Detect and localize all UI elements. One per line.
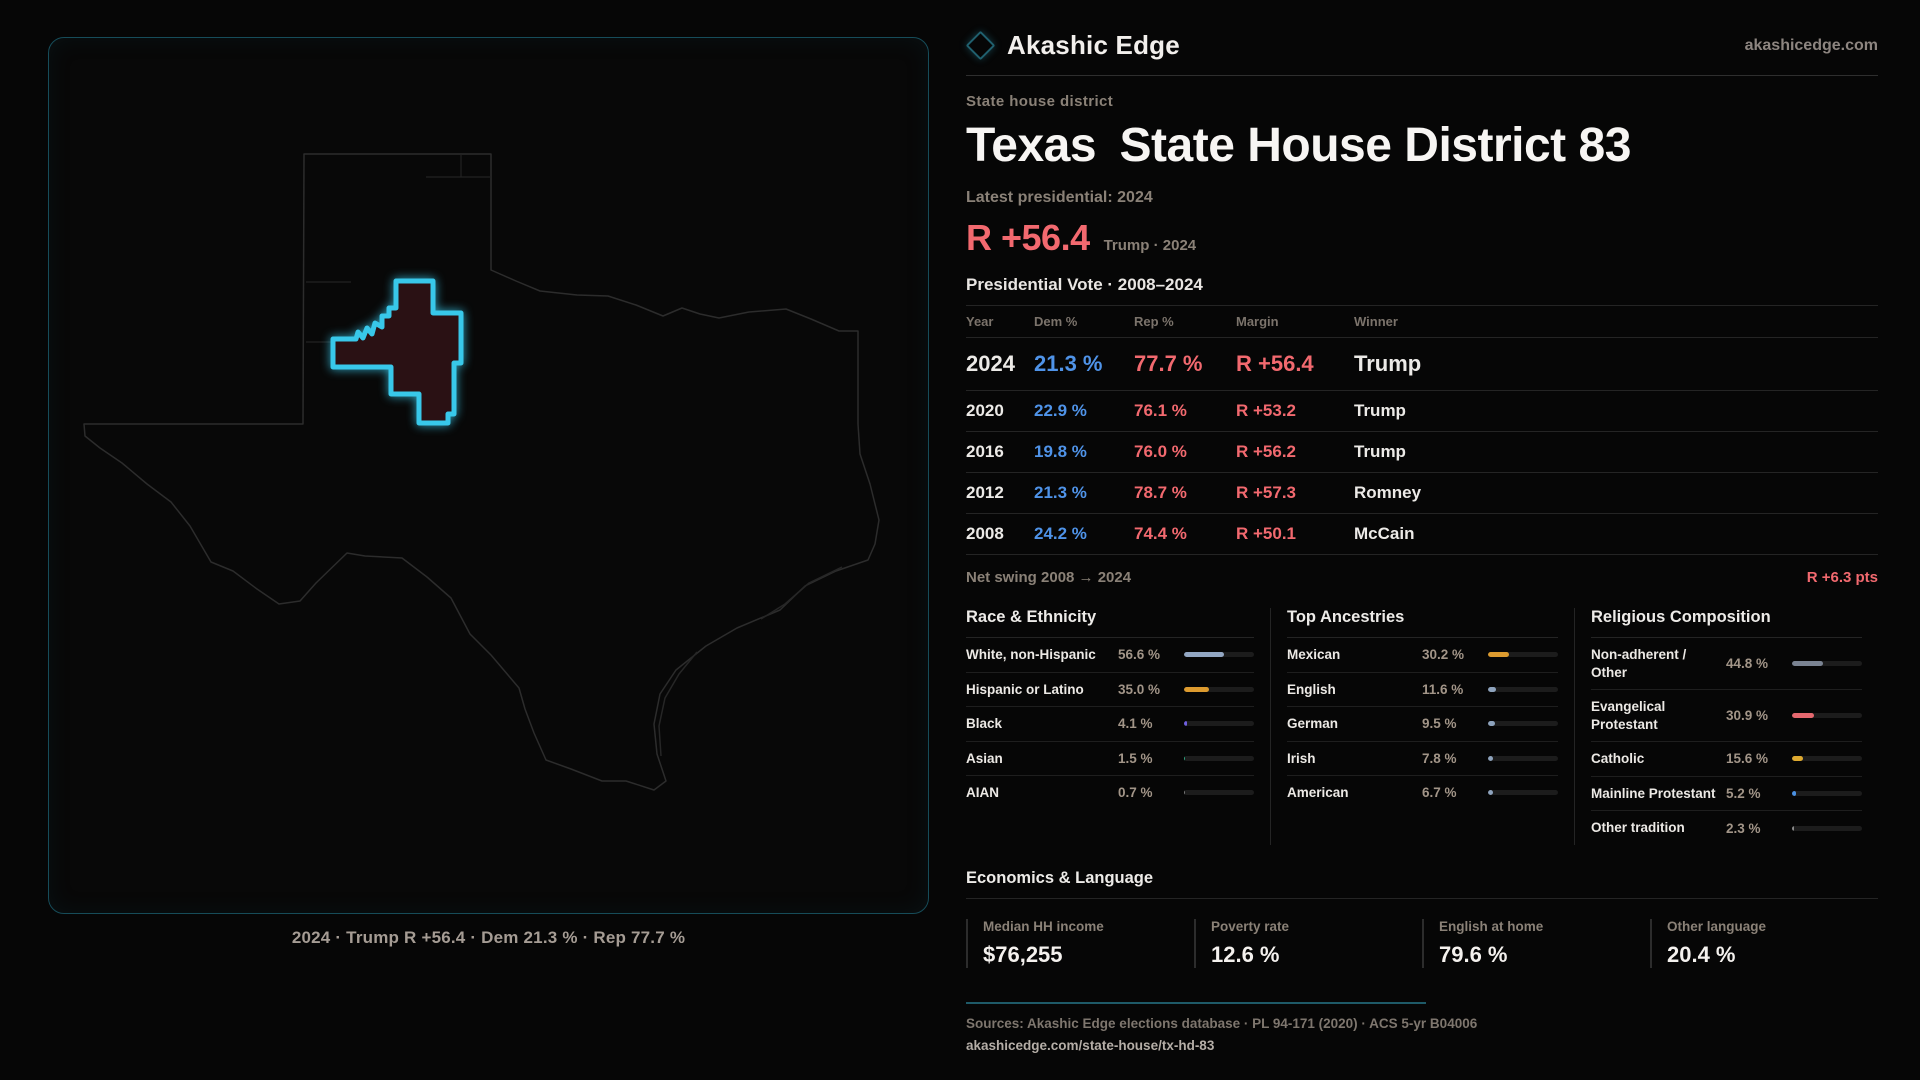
stat-row: Mexican 30.2 % (1287, 638, 1558, 673)
stat-bar (1488, 721, 1558, 726)
texas-outline (84, 154, 879, 790)
headline-context: Trump · 2024 (1104, 237, 1197, 254)
texas-map (49, 38, 929, 914)
diamond-logo-icon (966, 31, 996, 61)
stat-row: Catholic 15.6 % (1591, 742, 1862, 777)
map-caption: 2024 · Trump R +56.4 · Dem 21.3 % · Rep … (48, 928, 929, 948)
stat-row: Asian 1.5 % (966, 742, 1254, 777)
presidential-table: Year Dem % Rep % Margin Winner 2024 21.3… (966, 305, 1878, 555)
district-shape[interactable] (333, 281, 461, 423)
stat-bar (1792, 791, 1862, 796)
stat-row: Irish 7.8 % (1287, 742, 1558, 777)
table-title: Presidential Vote · 2008–2024 (966, 275, 1878, 295)
economics-title: Economics & Language (966, 869, 1878, 899)
stat-row: Black 4.1 % (966, 707, 1254, 742)
stat-row: Hispanic or Latino 35.0 % (966, 673, 1254, 708)
stat-row: Non-adherent / Other 44.8 % (1591, 638, 1862, 690)
stat-row: AIAN 0.7 % (966, 776, 1254, 810)
stat-bar (1184, 687, 1254, 692)
stat-row: American 6.7 % (1287, 776, 1558, 810)
stat-bar (1488, 790, 1558, 795)
table-row: 2012 21.3 % 78.7 % R +57.3 Romney (966, 472, 1878, 513)
stat-bar (1792, 756, 1862, 761)
sources-text: Sources: Akashic Edge elections database… (966, 1016, 1878, 1031)
table-header-row: Year Dem % Rep % Margin Winner (966, 305, 1878, 337)
net-swing-row: Net swing 2008 → 2024 R +6.3 pts (966, 569, 1878, 586)
stat-row: Other tradition 2.3 % (1591, 811, 1862, 845)
stat-bar (1792, 713, 1862, 718)
kicker: State house district (966, 93, 1878, 110)
footer-accent-divider (966, 1002, 1426, 1004)
detail-pane: Akashic Edge akashicedge.com State house… (966, 30, 1878, 1053)
map-panel (48, 37, 929, 914)
table-row: 2024 21.3 % 77.7 % R +56.4 Trump (966, 337, 1878, 390)
table-row: 2016 19.8 % 76.0 % R +56.2 Trump (966, 431, 1878, 472)
stat-bar (1488, 652, 1558, 657)
stat-row: White, non-Hispanic 56.6 % (966, 638, 1254, 673)
col-dem: Dem % (1034, 314, 1134, 329)
brand-name: Akashic Edge (1007, 30, 1180, 61)
table-row: 2020 22.9 % 76.1 % R +53.2 Trump (966, 390, 1878, 431)
page-title: Texas State House District 83 (966, 118, 1878, 173)
panel-ancestry: Top Ancestries Mexican 30.2 % English 11… (1270, 608, 1574, 845)
stat-bar (1184, 756, 1254, 761)
col-year: Year (966, 314, 1034, 329)
col-rep: Rep % (1134, 314, 1236, 329)
col-winner: Winner (1354, 314, 1878, 329)
permalink[interactable]: akashicedge.com/state-house/tx-hd-83 (966, 1038, 1878, 1053)
demographic-panels: Race & Ethnicity White, non-Hispanic 56.… (966, 608, 1878, 845)
stat-bar (1184, 790, 1254, 795)
stat-row: German 9.5 % (1287, 707, 1558, 742)
stat-row: English 11.6 % (1287, 673, 1558, 708)
stat-block: Median HH income $76,255 (966, 919, 1194, 968)
latest-label: Latest presidential: 2024 (966, 189, 1878, 207)
economics-stats: Median HH income $76,255 Poverty rate 12… (966, 919, 1878, 968)
stat-bar (1488, 687, 1558, 692)
net-swing-value: R +6.3 pts (1807, 569, 1878, 586)
net-swing-label: Net swing 2008 → 2024 (966, 569, 1131, 586)
headline-margin-row: R +56.4 Trump · 2024 (966, 217, 1878, 259)
panel-religion: Religious Composition Non-adherent / Oth… (1574, 608, 1878, 845)
stat-bar (1488, 756, 1558, 761)
col-margin: Margin (1236, 314, 1354, 329)
headline-margin: R +56.4 (966, 217, 1090, 259)
stat-row: Mainline Protestant 5.2 % (1591, 777, 1862, 812)
stat-bar (1184, 652, 1254, 657)
header-divider (966, 75, 1878, 76)
table-row: 2008 24.2 % 74.4 % R +50.1 McCain (966, 513, 1878, 555)
stat-row: Evangelical Protestant 30.9 % (1591, 690, 1862, 742)
brand-domain-link[interactable]: akashicedge.com (1745, 37, 1878, 55)
stat-block: Poverty rate 12.6 % (1194, 919, 1422, 968)
header: Akashic Edge akashicedge.com (966, 30, 1878, 61)
stat-bar (1792, 826, 1862, 831)
stat-bar (1184, 721, 1254, 726)
panel-race: Race & Ethnicity White, non-Hispanic 56.… (966, 608, 1270, 845)
stat-bar (1792, 661, 1862, 666)
stat-block: English at home 79.6 % (1422, 919, 1650, 968)
stat-block: Other language 20.4 % (1650, 919, 1878, 968)
